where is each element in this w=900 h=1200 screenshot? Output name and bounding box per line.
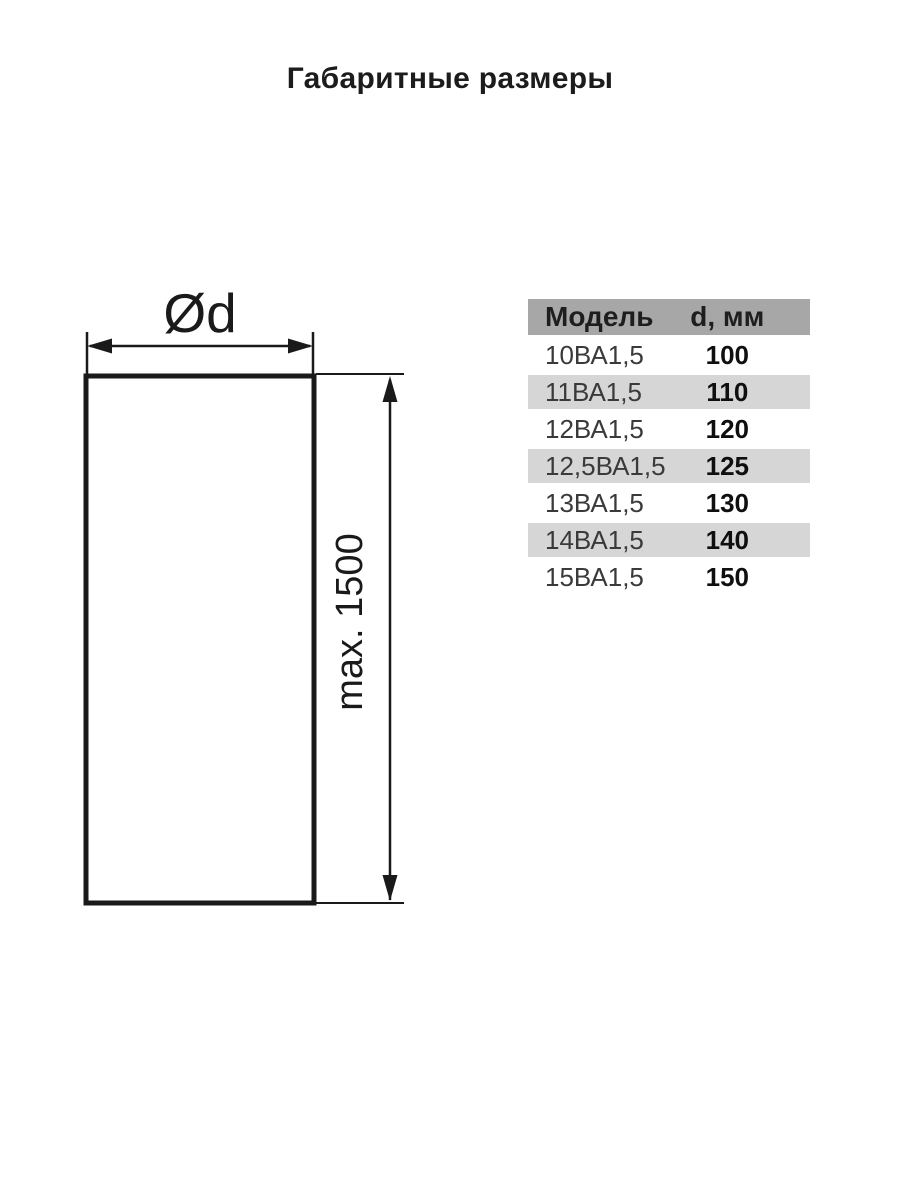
product-outline-rect <box>86 376 314 903</box>
table-row: 10ВА1,5 100 <box>528 338 810 372</box>
height-dimension-arrow-top-icon <box>383 376 398 402</box>
page-title: Габаритные размеры <box>0 62 900 96</box>
model-cell: 12,5ВА1,5 <box>528 449 673 483</box>
spec-table-body: 10ВА1,5 100 11ВА1,5 110 12ВА1,5 120 12,5… <box>528 338 810 594</box>
value-cell: 110 <box>673 375 810 409</box>
value-cell: 150 <box>673 560 810 594</box>
width-dimension-arrow-right-icon <box>288 339 313 354</box>
model-cell: 12ВА1,5 <box>528 412 673 446</box>
model-cell: 11ВА1,5 <box>528 375 673 409</box>
spec-table: Модель d, мм 10ВА1,5 100 11ВА1,5 110 12В… <box>528 296 810 597</box>
table-row: 11ВА1,5 110 <box>528 375 810 409</box>
model-cell: 13ВА1,5 <box>528 486 673 520</box>
value-cell: 120 <box>673 412 810 446</box>
value-cell: 100 <box>673 338 810 372</box>
height-dimension-arrow-bottom-icon <box>383 875 398 901</box>
dimension-diagram: Ød max. 1500 <box>60 270 420 930</box>
width-dimension-arrow-left-icon <box>87 339 112 354</box>
value-cell: 140 <box>673 523 810 557</box>
table-row: 14ВА1,5 140 <box>528 523 810 557</box>
height-dimension-label: max. 1500 <box>329 533 371 710</box>
header-diameter: d, мм <box>673 299 810 335</box>
table-row: 12ВА1,5 120 <box>528 412 810 446</box>
model-cell: 14ВА1,5 <box>528 523 673 557</box>
value-cell: 125 <box>673 449 810 483</box>
value-cell: 130 <box>673 486 810 520</box>
model-cell: 10ВА1,5 <box>528 338 673 372</box>
table-row: 12,5ВА1,5 125 <box>528 449 810 483</box>
spec-table-header: Модель d, мм <box>528 299 810 335</box>
diameter-label: Ød <box>163 282 236 344</box>
header-row: Модель d, мм <box>528 299 810 335</box>
table-row: 15ВА1,5 150 <box>528 560 810 594</box>
table-row: 13ВА1,5 130 <box>528 486 810 520</box>
dimension-diagram-svg: Ød max. 1500 <box>60 270 420 930</box>
model-cell: 15ВА1,5 <box>528 560 673 594</box>
header-model: Модель <box>528 299 673 335</box>
